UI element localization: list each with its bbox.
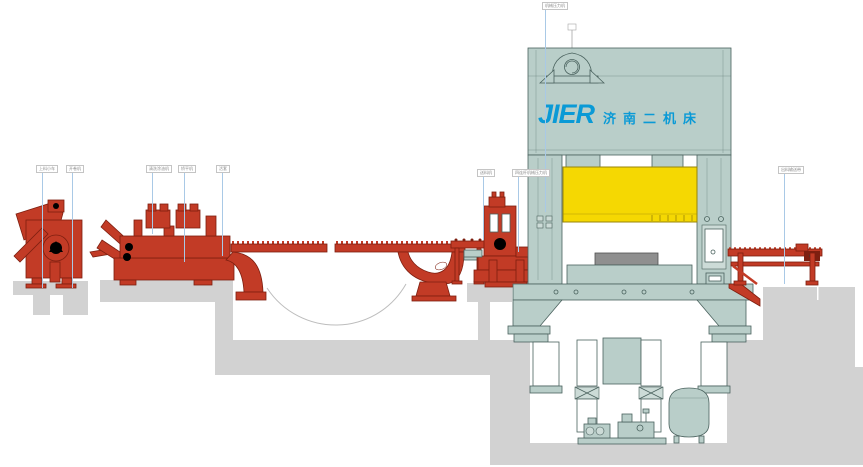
callout-label: 矫平机 (178, 165, 196, 173)
jier-logo: JIER济南二机床 (538, 99, 703, 130)
press-bed (508, 284, 753, 342)
jier-logo-chinese: 济南二机床 (603, 111, 703, 126)
press-line-diagram: JIER济南二机床 上料小车开卷机清洗涂油机矫平机活套送料机四连杆机械压力机机械… (0, 0, 863, 467)
jier-logo-latin: JIER (538, 99, 594, 129)
callout-label: 机械压力机 (542, 2, 568, 10)
leader-line (152, 173, 153, 234)
washer-leveler (97, 204, 234, 285)
looper-conveyor (226, 243, 480, 302)
bolster-block (567, 265, 692, 284)
leader-line (518, 177, 519, 252)
leader-line (72, 173, 73, 288)
callout-label: 送料机 (477, 169, 495, 177)
callout-label: 活套 (216, 165, 230, 173)
arch-support-right (398, 252, 464, 284)
diagram-canvas (0, 0, 863, 467)
leader-line (545, 10, 546, 212)
callout-label: 出料输送带 (778, 166, 804, 174)
press-pit-equipment (530, 338, 730, 444)
die-cushion (603, 338, 641, 384)
callout-label: 四连杆机械压力机 (512, 169, 550, 177)
looper-pit (215, 302, 490, 375)
strip-loop-curve (267, 284, 406, 325)
slide-hanger-right (652, 155, 683, 168)
press-upright-right (697, 155, 731, 285)
press-crown (528, 24, 731, 155)
slide-hanger-left (566, 155, 600, 168)
leader-line (184, 173, 185, 262)
x-brace-right (639, 387, 663, 399)
callout-label: 清洗涂油机 (146, 165, 172, 173)
accumulator-tank (669, 388, 709, 443)
leader-line (222, 173, 223, 256)
moving-bolster (595, 253, 658, 265)
callout-label: 上料小车 (36, 165, 58, 173)
leader-line (784, 174, 785, 284)
x-brace-left (575, 387, 599, 399)
die-area (563, 167, 697, 222)
callout-label: 开卷机 (66, 165, 84, 173)
leader-line (483, 177, 484, 240)
leader-line (42, 173, 43, 288)
